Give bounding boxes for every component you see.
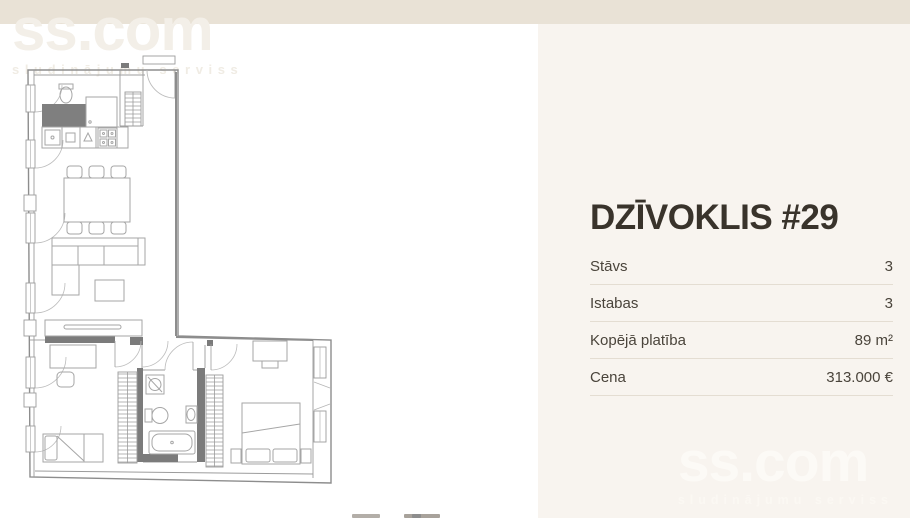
kitchen-counter	[42, 104, 86, 127]
detail-row-price: Cena 313.000 €	[590, 359, 893, 396]
double-bed	[242, 403, 300, 464]
detail-value: 3	[885, 295, 893, 312]
detail-row-floor: Stāvs 3	[590, 248, 893, 285]
nightstand-right	[301, 449, 311, 463]
detail-label: Cena	[590, 369, 626, 386]
toilet	[145, 409, 152, 422]
bedroom-master	[206, 341, 311, 467]
artifact-mark	[352, 514, 380, 518]
detail-value: 89 m²	[855, 332, 893, 349]
living-room	[45, 238, 145, 336]
master-windows	[314, 347, 330, 442]
bedroom-small	[43, 345, 137, 463]
single-bed	[43, 434, 103, 462]
nightstand-left	[231, 449, 241, 463]
kitchen	[42, 84, 141, 148]
detail-row-rooms: Istabas 3	[590, 285, 893, 322]
details-table: Stāvs 3 Istabas 3 Kopējā platība 89 m² C…	[590, 248, 893, 396]
inner-wall-lines	[30, 70, 313, 478]
desk-chair	[57, 372, 74, 387]
window-swing-arcs	[35, 85, 66, 452]
outer-walls	[28, 70, 331, 483]
dining-set	[64, 166, 130, 234]
sofa	[52, 238, 145, 265]
listing-page: ss.com sludinājumu serviss	[0, 0, 910, 518]
detail-value: 313.000 €	[826, 369, 893, 386]
tv-sideboard	[45, 320, 142, 336]
interior-walls	[176, 72, 313, 340]
artifact-mark	[412, 514, 421, 518]
tv	[64, 325, 121, 329]
detail-value: 3	[885, 258, 893, 275]
tv-wall	[45, 336, 115, 343]
bathroom	[145, 375, 197, 454]
door-swings	[115, 341, 237, 370]
desk	[50, 345, 96, 368]
detail-label: Stāvs	[590, 258, 628, 275]
master-tv-unit	[253, 341, 287, 361]
dining-table	[64, 178, 130, 222]
wardrobe-2	[206, 375, 223, 467]
entrance-door	[143, 56, 175, 98]
detail-label: Istabas	[590, 295, 638, 312]
detail-label: Kopējā platība	[590, 332, 686, 349]
wardrobe-1	[118, 372, 137, 463]
floor-plan	[0, 0, 537, 518]
kitchen-sink	[45, 130, 60, 145]
coffee-table	[95, 280, 124, 301]
entry-closet	[125, 92, 141, 126]
detail-row-area: Kopējā platība 89 m²	[590, 322, 893, 359]
artifact-mark	[404, 514, 440, 518]
page-title: DZĪVOKLIS #29	[590, 198, 838, 238]
